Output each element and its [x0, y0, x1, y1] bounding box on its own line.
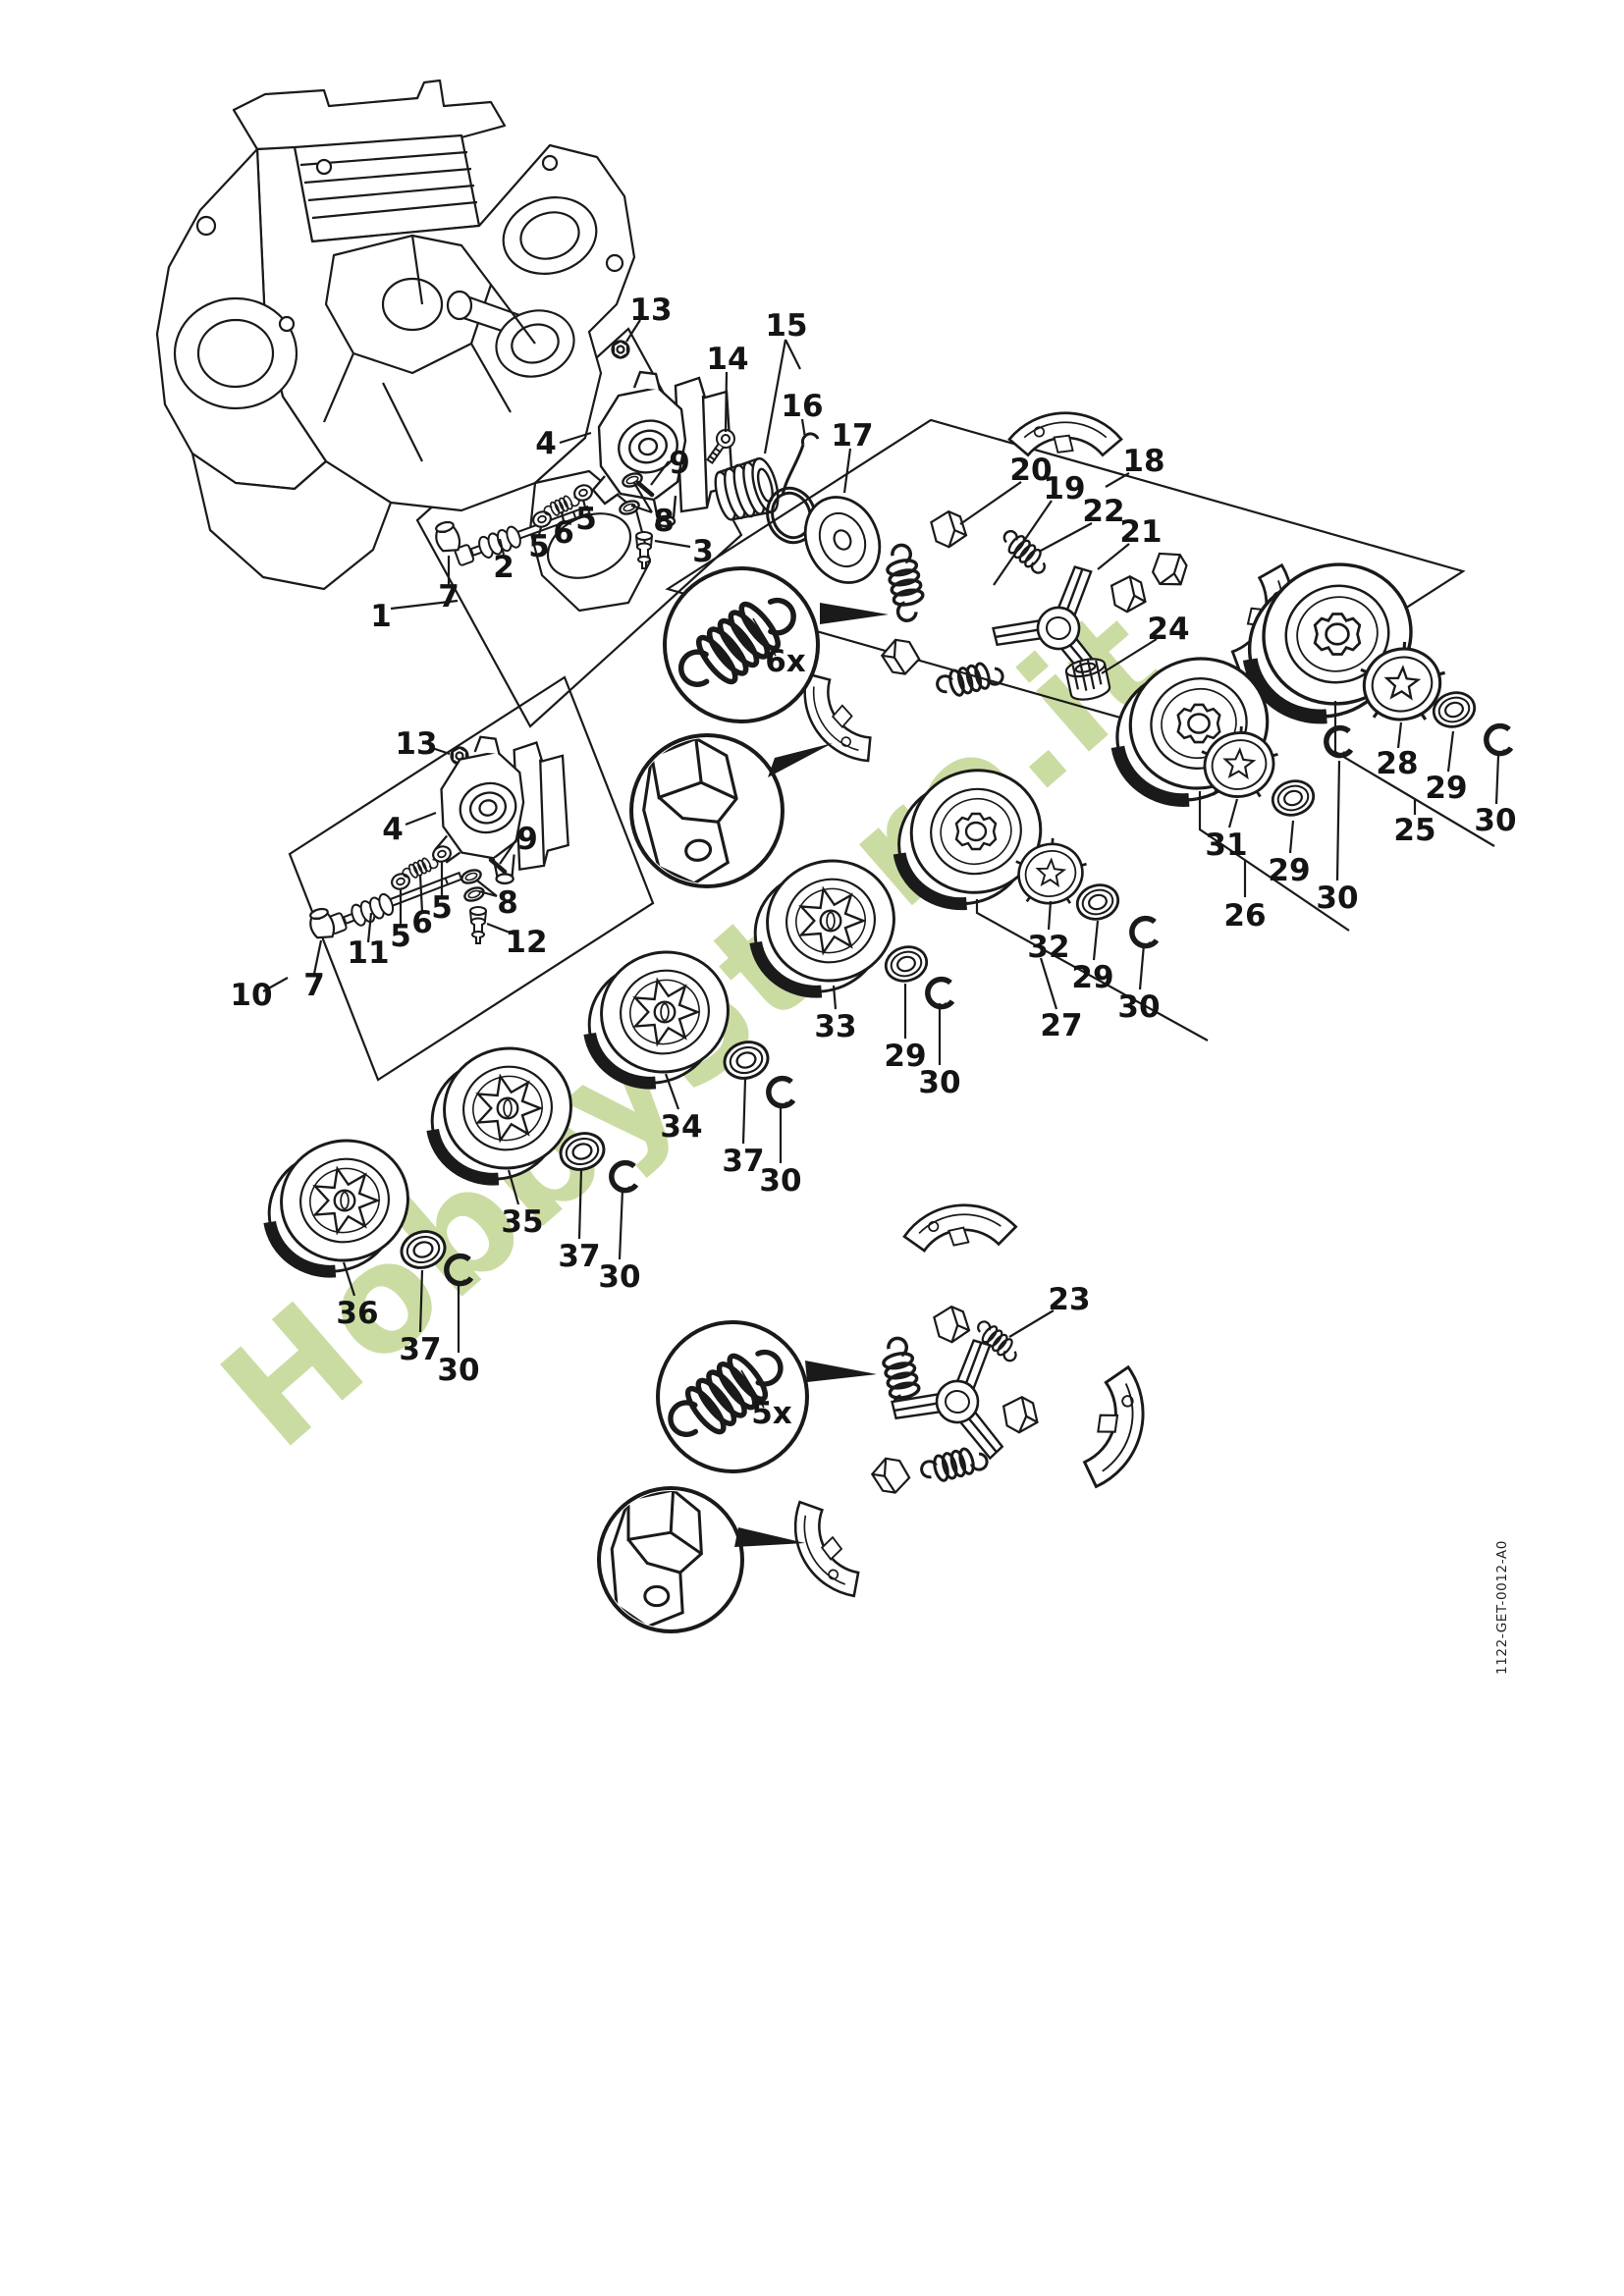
part-number-label: 7 [438, 579, 460, 614]
part-number-label: 18 [1122, 444, 1164, 479]
part-number-label: 32 [1027, 930, 1069, 965]
part-number-label: 30 [1316, 881, 1358, 916]
clutch-assembly-bottom [778, 1201, 1156, 1609]
part-number-label: 30 [918, 1065, 960, 1100]
part-number-label: 17 [831, 418, 873, 454]
part-number-label: 5 [575, 502, 597, 537]
part-number-label: 29 [1268, 853, 1310, 888]
parts-diagram-page: HobbyStore.it [0, 0, 1624, 2296]
part-number-label: 30 [437, 1353, 479, 1388]
part-number-label: 29 [1071, 960, 1113, 995]
part-number-label: 37 [399, 1332, 441, 1367]
part-number-label: 10 [230, 978, 272, 1013]
part-number-label: 37 [722, 1144, 764, 1179]
callout-arrow [768, 743, 833, 777]
part-number-label: 6 [411, 905, 433, 940]
part-number-label: 2 [493, 550, 514, 585]
part-number-label: 6 [553, 515, 574, 551]
part-number-label: 13 [629, 293, 672, 328]
part-number-label: 22 [1082, 494, 1124, 529]
part-number-label: 5 [390, 919, 411, 954]
part-number-label: 15 [765, 308, 807, 344]
part-number-label: 5 [431, 890, 453, 926]
part-number-label: 37 [558, 1239, 600, 1274]
part-number-label: 25 [1393, 813, 1435, 848]
part-number-label: 31 [1205, 828, 1247, 863]
part-number-label: 35 [501, 1204, 543, 1240]
part-number-label: 14 [706, 342, 748, 377]
part-number-label: 30 [1474, 803, 1516, 838]
part-number-label: 13 [395, 726, 437, 762]
part-number-label: 6x [765, 644, 806, 679]
part-number-label: 5x [751, 1396, 792, 1431]
part-number-label: 26 [1223, 898, 1266, 934]
disc-17 [791, 485, 893, 595]
part-number-label: 4 [382, 812, 404, 847]
part-number-label: 29 [1425, 771, 1467, 806]
part-number-label: 21 [1119, 514, 1162, 550]
part-number-label: 7 [303, 968, 325, 1003]
part-number-label: 27 [1040, 1008, 1082, 1043]
part-number-label: 19 [1043, 471, 1085, 507]
callout-arrow [820, 603, 889, 624]
document-number: 1122-GET-0012-A0 [1494, 1540, 1510, 1675]
part-number-label: 28 [1376, 746, 1418, 781]
part-number-label: 1 [370, 599, 392, 634]
part-number-label: 30 [598, 1259, 640, 1295]
part-number-label: 9 [516, 822, 538, 857]
part-number-label: 11 [347, 935, 389, 971]
part-number-label: 4 [535, 426, 557, 461]
part-number-label: 36 [336, 1296, 378, 1331]
part-number-label: 9 [669, 446, 690, 481]
exploded-parts-diagram: 1725658394131415161718201922212428292530… [0, 0, 1624, 2296]
part-number-label: 24 [1147, 612, 1189, 647]
part-number-label: 16 [781, 389, 823, 424]
part-number-label: 33 [814, 1009, 856, 1044]
part-number-label: 30 [1117, 989, 1160, 1025]
part-number-label: 23 [1048, 1282, 1090, 1317]
part-number-label: 30 [759, 1163, 801, 1199]
part-number-label: 8 [497, 885, 518, 921]
part-number-label: 3 [692, 534, 714, 569]
part-number-label: 34 [660, 1109, 702, 1145]
part-number-label: 5 [528, 529, 550, 564]
part-number-label: 12 [505, 925, 547, 960]
callout-arrow [805, 1361, 877, 1382]
part-number-label: 8 [653, 504, 675, 539]
